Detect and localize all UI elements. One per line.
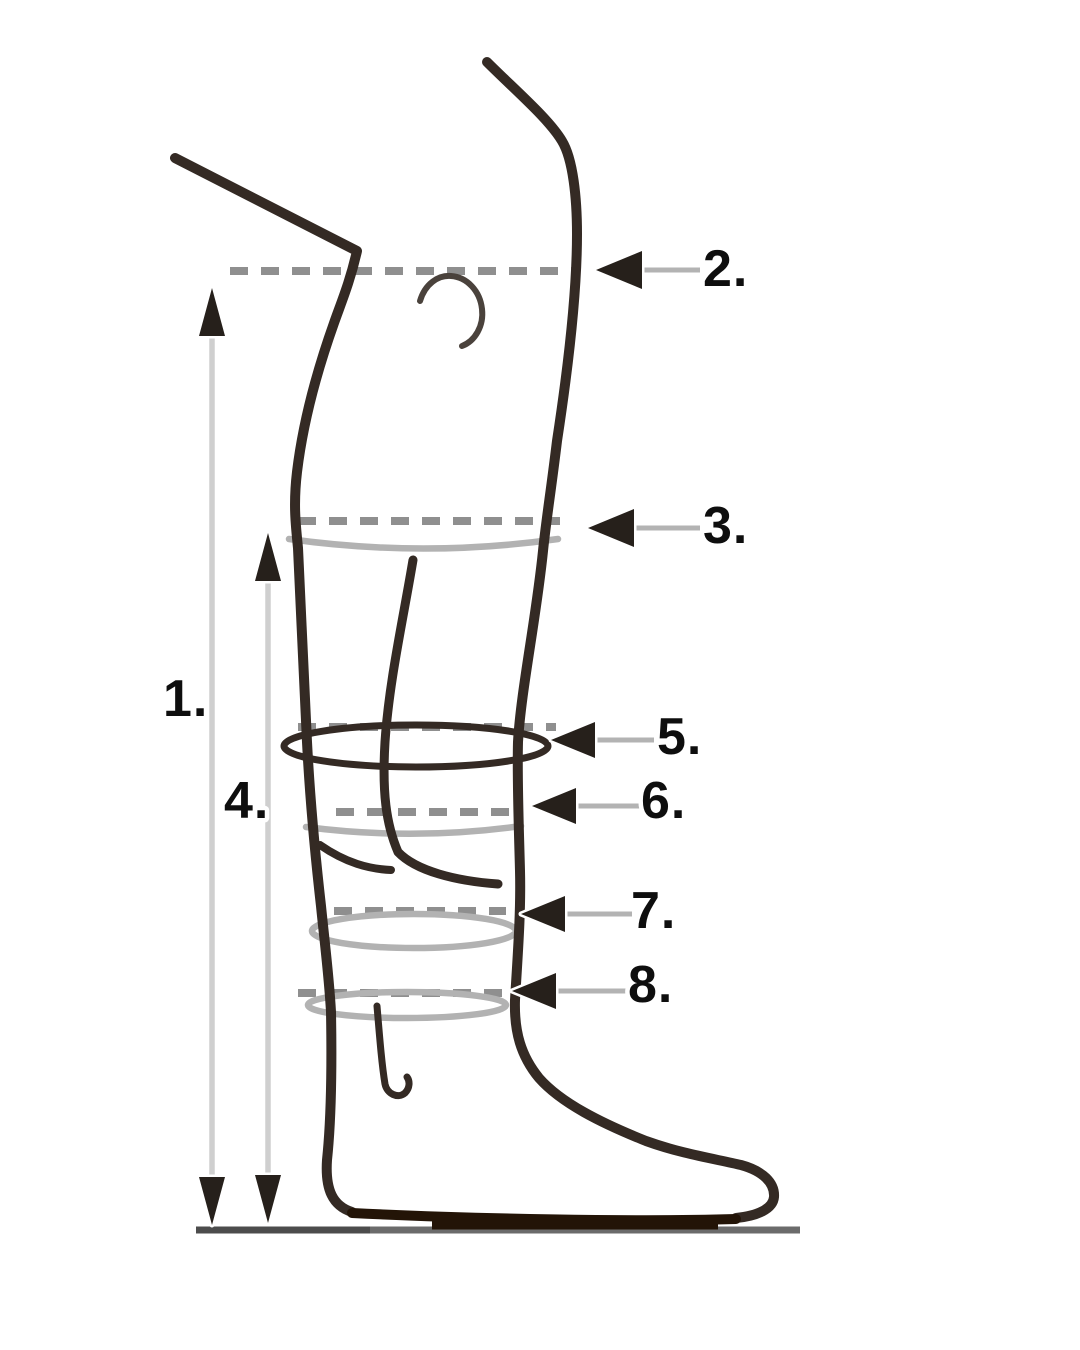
measure-label-6: 6. bbox=[641, 772, 686, 830]
horizontal-arrow-shafts bbox=[552, 270, 700, 991]
measure-label-8: 8. bbox=[628, 956, 673, 1014]
measure-label-7: 7. bbox=[631, 882, 676, 940]
left-arrowhead-5-icon bbox=[551, 722, 595, 758]
measure-label-5: 5. bbox=[657, 708, 702, 766]
leg-outline-front bbox=[487, 62, 774, 1218]
measure-label-3: 3. bbox=[703, 497, 748, 555]
leg-drawing bbox=[175, 62, 774, 1220]
above-ankle-ellipse bbox=[312, 914, 516, 948]
down-arrowhead-4-icon bbox=[255, 1175, 281, 1223]
calf-ellipse bbox=[284, 725, 548, 767]
measure-label-1: 1. bbox=[163, 670, 208, 728]
knee-crease-line bbox=[289, 539, 558, 549]
calf-lower-crease bbox=[320, 845, 391, 870]
below-calf-crease-line bbox=[306, 826, 521, 834]
vertical-measure-shafts bbox=[212, 334, 268, 1179]
measure-label-2: 2. bbox=[703, 240, 748, 298]
up-arrowhead-4-icon bbox=[255, 533, 281, 581]
knee-back-curve bbox=[420, 276, 482, 346]
measure-label-4: 4. bbox=[224, 772, 269, 830]
down-arrowhead-1-icon bbox=[199, 1177, 225, 1225]
measure-labels: 1. 2. 3. 4. 5. 6. 7. 8. bbox=[163, 240, 748, 1014]
up-arrowhead-1-icon bbox=[199, 288, 225, 336]
diagram-canvas: 1. 2. 3. 4. 5. 6. 7. 8. bbox=[0, 0, 1080, 1350]
foot-sole bbox=[352, 1213, 736, 1220]
left-arrowhead-6-icon bbox=[532, 788, 576, 824]
leg-measurement-diagram: 1. 2. 3. 4. 5. 6. 7. 8. bbox=[0, 0, 1080, 1350]
ground bbox=[196, 1225, 800, 1230]
left-arrowhead-2-icon bbox=[596, 251, 642, 289]
left-arrowhead-3-icon bbox=[588, 509, 634, 547]
left-arrowhead-7-icon bbox=[521, 896, 565, 932]
